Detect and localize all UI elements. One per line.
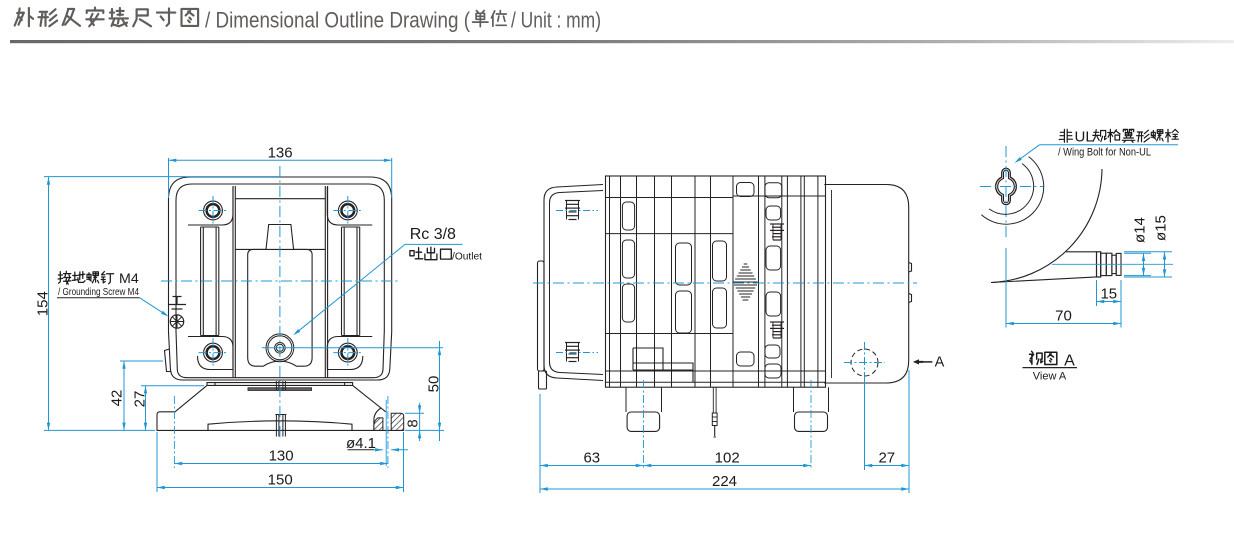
svg-text:Rc 3/8: Rc 3/8	[410, 226, 456, 243]
svg-text:ø14: ø14	[1132, 217, 1149, 243]
svg-text:/ Dimensional Outline Drawing: / Dimensional Outline Drawing (	[205, 7, 471, 32]
svg-text:42: 42	[109, 390, 126, 407]
svg-text:27: 27	[878, 450, 895, 467]
svg-text:224: 224	[712, 473, 737, 490]
svg-text:ø15: ø15	[1153, 215, 1170, 241]
svg-text:70: 70	[1055, 308, 1072, 325]
svg-text:/Outlet: /Outlet	[452, 251, 482, 263]
svg-text:130: 130	[269, 448, 294, 465]
svg-text:27: 27	[132, 391, 149, 408]
svg-text:/ Wing Bolt for Non-UL: / Wing Bolt for Non-UL	[1058, 147, 1151, 159]
svg-text:A: A	[935, 355, 945, 371]
svg-text:154: 154	[35, 291, 52, 316]
svg-text:View A: View A	[1033, 371, 1067, 383]
svg-text:A: A	[1064, 353, 1075, 370]
svg-text:102: 102	[715, 450, 740, 467]
svg-text:50: 50	[426, 376, 443, 393]
svg-text:M4: M4	[119, 271, 139, 287]
svg-text:/ Grounding Screw M4: / Grounding Screw M4	[58, 287, 139, 298]
svg-text:136: 136	[268, 145, 293, 162]
svg-text:150: 150	[268, 472, 293, 489]
svg-text:/ Unit : mm): / Unit : mm)	[511, 7, 601, 32]
svg-text:8: 8	[405, 419, 422, 427]
svg-text:15: 15	[1100, 286, 1117, 303]
svg-text:63: 63	[583, 450, 600, 467]
svg-text:UL: UL	[1075, 129, 1094, 146]
